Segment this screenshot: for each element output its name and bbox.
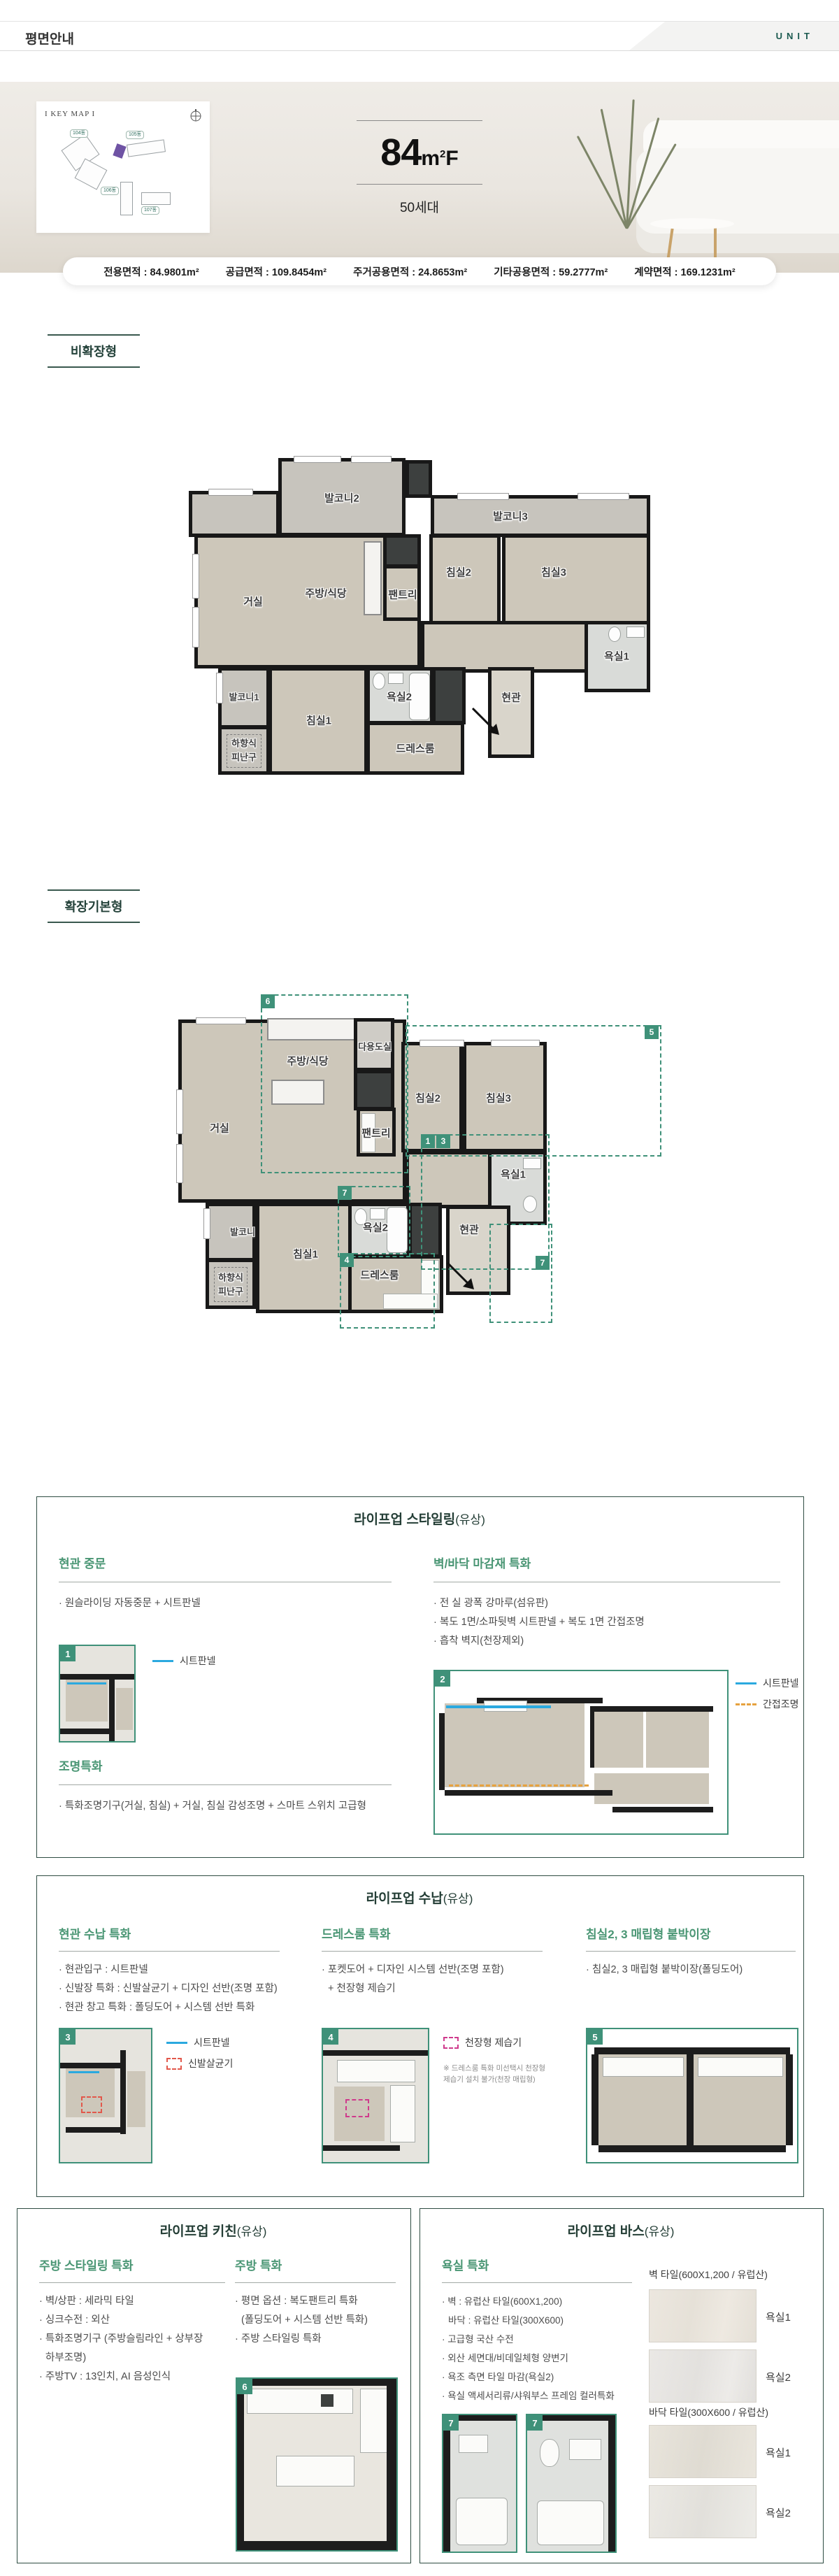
shaft <box>383 534 421 568</box>
shaft <box>406 460 432 498</box>
bathtub-shape <box>409 673 430 720</box>
window <box>457 493 509 500</box>
compass-icon <box>189 108 203 122</box>
building-badge: 106동 <box>101 187 119 195</box>
rule <box>39 2282 225 2283</box>
thumb-kitchen: 6 <box>236 2377 398 2552</box>
door-bullets: · 원슬라이딩 자동중문 + 시트판넬 <box>59 1594 201 1613</box>
room-label: 주방/식당 <box>305 586 346 601</box>
window <box>203 1208 210 1239</box>
title-divider-bottom <box>357 184 482 185</box>
section-label-non-extended: 비확장형 <box>48 334 140 368</box>
kitchen-bullets: · 평면 옵션 : 복도팬트리 특화 (폴딩도어 + 시스템 선반 특화) · … <box>235 2292 368 2349</box>
title-divider-top <box>357 120 482 121</box>
finish-heading: 벽/바닥 마감재 특화 <box>433 1554 531 1571</box>
room-balcony3 <box>431 495 650 537</box>
rule <box>322 1951 543 1952</box>
room-label: 욕실1 <box>604 649 629 664</box>
finish-legend: 시트판넬 간접조명 <box>736 1673 799 1715</box>
kitchen-styling-bullets: · 벽/상판 : 세라믹 타일 · 싱크수전 : 외산 · 특화조명기구 (주방… <box>39 2292 203 2387</box>
room-label: 욕실2 <box>387 689 412 704</box>
wall-tile-swatch-bath2 <box>649 2349 756 2403</box>
rule <box>235 2282 396 2283</box>
room-label: 발코니3 <box>493 509 528 524</box>
lifeup-kitchen-title: 라이프업 키친(유상) <box>0 2221 426 2240</box>
door-heading: 현관 중문 <box>59 1554 106 1571</box>
window <box>294 456 341 463</box>
rule <box>586 1951 796 1952</box>
hero-banner: I KEY MAP I 104동 105동 106동 107동 84m2F 50… <box>0 82 839 273</box>
corridor <box>421 621 589 673</box>
indirect-light-dash-icon <box>736 1703 756 1705</box>
room-label: 발코니2 <box>324 491 359 506</box>
entry-storage-legend: 시트판넬 신발살균기 <box>166 2032 233 2074</box>
finish-bullets: · 전 실 광폭 강마루(섬유판) · 복도 1면/소파뒷벽 시트판넬 + 복도… <box>433 1594 645 1651</box>
thumb-badge-2: 2 <box>435 1671 450 1687</box>
unit-type: F <box>445 147 458 170</box>
sink-shape <box>388 673 403 684</box>
wall-tile-swatch-bath1 <box>649 2289 756 2342</box>
lighting-heading: 조명특화 <box>59 1756 103 1774</box>
lifeup-bath-title: 라이프업 바스(유상) <box>419 2221 822 2240</box>
window <box>351 456 392 463</box>
wall-tile-header: 벽 타일(600X1,200 / 유럽산) <box>649 2268 768 2282</box>
rule <box>433 1582 780 1582</box>
entry-storage-bullets: · 현관입구 : 시트판넬 · 신발장 특화 : 신발살균기 + 디자인 선반(… <box>59 1961 278 2017</box>
kitchen-styling-heading: 주방 스타일링 특화 <box>39 2256 134 2273</box>
thumb-badge-7a: 7 <box>443 2415 459 2431</box>
bath-heading: 욕실 특화 <box>442 2256 489 2273</box>
option-marker-4: 4 <box>340 1253 354 1267</box>
page: 평면안내 UNIT I KEY MAP I <box>0 0 839 2576</box>
window <box>196 1017 246 1024</box>
room-label: 하향식 <box>218 1271 243 1284</box>
entrance-arrow-icon <box>467 703 506 742</box>
area-item: 주거공용면적 : 24.8653m² <box>353 264 467 279</box>
thumb-badge-3: 3 <box>60 2029 76 2045</box>
sheet-panel-line-icon <box>166 2042 187 2044</box>
section-label-extended: 확장기본형 <box>48 889 140 923</box>
door-legend: 시트판넬 <box>152 1650 216 1671</box>
unit-title: 84m2F <box>0 131 839 174</box>
dressroom-heading: 드레스룸 특화 <box>322 1924 391 1942</box>
room-label: 침실2 <box>446 565 471 580</box>
dressroom-bullets: · 포켓도어 + 디자인 시스템 선반(조명 포함) + 천장형 제습기 <box>322 1961 504 1998</box>
thumb-finish: 2 <box>433 1670 729 1835</box>
brand-label: UNIT <box>776 31 814 41</box>
floor-tile-swatch-bath1 <box>649 2425 756 2478</box>
option-marker-6: 6 <box>261 994 275 1008</box>
sheet-panel-line-icon <box>152 1660 173 1662</box>
room-label: 거실 <box>243 594 263 609</box>
rule <box>442 2282 632 2283</box>
area-item: 계약면적 : 169.1231m² <box>634 264 735 279</box>
thumb-badge-4: 4 <box>323 2029 338 2045</box>
sheet-panel-line-icon <box>736 1682 756 1684</box>
room-label: 피난구 <box>218 1285 243 1298</box>
unit-suffix: m <box>421 147 440 170</box>
thumb-badge-6: 6 <box>237 2379 252 2394</box>
households-label: 50세대 <box>0 197 839 216</box>
option-zone-4 <box>340 1253 435 1329</box>
area-summary-bar: 전용면적 : 84.9801m² 공급면적 : 109.8454m² 주거공용면… <box>63 257 776 285</box>
window <box>578 493 629 500</box>
window <box>176 1144 183 1183</box>
thumb-bath-a: 7 <box>442 2414 517 2553</box>
floorplan-extended: 6 5 1 3 7 4 7 주방/식당 다용도실 거실 팬트리 침실2 침실3 … <box>175 930 664 1353</box>
room-bed2 <box>429 534 501 625</box>
closet-heading: 침실2, 3 매립형 붙박이장 <box>586 1924 711 1942</box>
rule <box>59 1951 280 1952</box>
area-item: 공급면적 : 109.8454m² <box>226 264 327 279</box>
wall-tile-label-bath2: 욕실2 <box>766 2370 791 2384</box>
window <box>192 554 199 599</box>
rule <box>59 1784 392 1785</box>
room-label: 드레스룸 <box>396 741 434 756</box>
option-zone-6 <box>261 994 408 1173</box>
window <box>176 1089 183 1134</box>
room-label: 침실1 <box>293 1247 318 1261</box>
sink-shape <box>626 627 645 638</box>
thumb-bath-b: 7 <box>526 2414 617 2553</box>
option-marker-7: 7 <box>338 1186 352 1200</box>
room-label: 발코니1 <box>229 690 259 703</box>
bath-bullets: · 벽 : 유럽산 타일(600X1,200) 바닥 : 유럽산 타일(300X… <box>442 2292 615 2405</box>
thumb-closet: 5 <box>586 2028 798 2163</box>
room-label: 침실1 <box>306 713 331 728</box>
lighting-bullets: · 특화조명기구(거실, 침실) + 거실, 침실 감성조명 + 스마트 스위치… <box>59 1797 366 1816</box>
toilet-shape <box>373 673 385 689</box>
thumb-badge-5: 5 <box>587 2029 603 2045</box>
floorplan-non-extended: 발코니2 발코니3 거실 주방/식당 팬트리 침실2 침실3 욕실1 발코니1 … <box>189 392 650 783</box>
window <box>216 673 223 703</box>
kitchen-heading: 주방 특화 <box>235 2256 282 2273</box>
rule <box>59 1582 392 1582</box>
thumb-entry-storage: 3 <box>59 2028 152 2163</box>
key-map-label: I KEY MAP I <box>45 110 95 118</box>
shaft <box>432 667 466 724</box>
dressroom-legend: 천장형 제습기 <box>443 2032 522 2053</box>
option-marker-1: 1 <box>421 1134 435 1148</box>
page-header: 평면안내 UNIT <box>0 21 839 51</box>
thumb-badge-1: 1 <box>60 1646 76 1661</box>
room-label: 침실3 <box>541 565 566 580</box>
floor-tile-label-bath1: 욕실1 <box>766 2445 791 2460</box>
lifeup-styling-title: 라이프업 스타일링(유상) <box>0 1509 839 1528</box>
dressroom-note: ※ 드레스룸 특화 미선택시 천장형 제습기 설치 불가(천장 매립형) <box>443 2063 545 2085</box>
thumb-badge-7b: 7 <box>527 2415 543 2431</box>
window <box>192 607 199 647</box>
thumb-door: 1 <box>59 1645 136 1743</box>
floor-tile-label-bath2: 욕실2 <box>766 2505 791 2520</box>
room-label: 피난구 <box>231 750 257 764</box>
option-marker-3: 3 <box>436 1134 450 1148</box>
entry-storage-heading: 현관 수납 특화 <box>59 1924 131 1942</box>
option-marker-5: 5 <box>645 1025 659 1039</box>
area-item: 기타공용면적 : 59.2777m² <box>494 264 608 279</box>
option-zone-7b <box>489 1224 552 1323</box>
floor-tile-header: 바닥 타일(300X600 / 유럽산) <box>649 2405 768 2419</box>
room-label: 하향식 <box>231 736 257 750</box>
room-label: 거실 <box>210 1121 229 1136</box>
side-table-shape <box>650 218 734 229</box>
lifeup-storage-title: 라이프업 수납(유상) <box>0 1888 839 1907</box>
thumb-dressroom: 4 <box>322 2028 429 2163</box>
entrance-arrow-icon <box>442 1257 481 1296</box>
area-item: 전용면적 : 84.9801m² <box>103 264 199 279</box>
shoe-sterilizer-dash-icon <box>166 2058 182 2070</box>
room-label: 팬트리 <box>388 587 417 602</box>
unit-size: 84 <box>380 131 421 173</box>
toilet-shape <box>608 627 621 642</box>
room-label: 발코니 <box>230 1225 255 1238</box>
closet-bullets: · 침실2, 3 매립형 붙박이장(폴딩도어) <box>586 1961 743 1980</box>
window <box>208 489 253 496</box>
option-marker-7b: 7 <box>536 1256 550 1270</box>
kitchen-counter <box>364 541 382 615</box>
page-title: 평면안내 <box>25 29 74 48</box>
floor-tile-swatch-bath2 <box>649 2485 756 2538</box>
dehumidifier-dash-icon <box>443 2037 459 2049</box>
wall-tile-label-bath1: 욕실1 <box>766 2310 791 2324</box>
ledge <box>189 491 280 537</box>
room-bed3 <box>502 534 650 625</box>
